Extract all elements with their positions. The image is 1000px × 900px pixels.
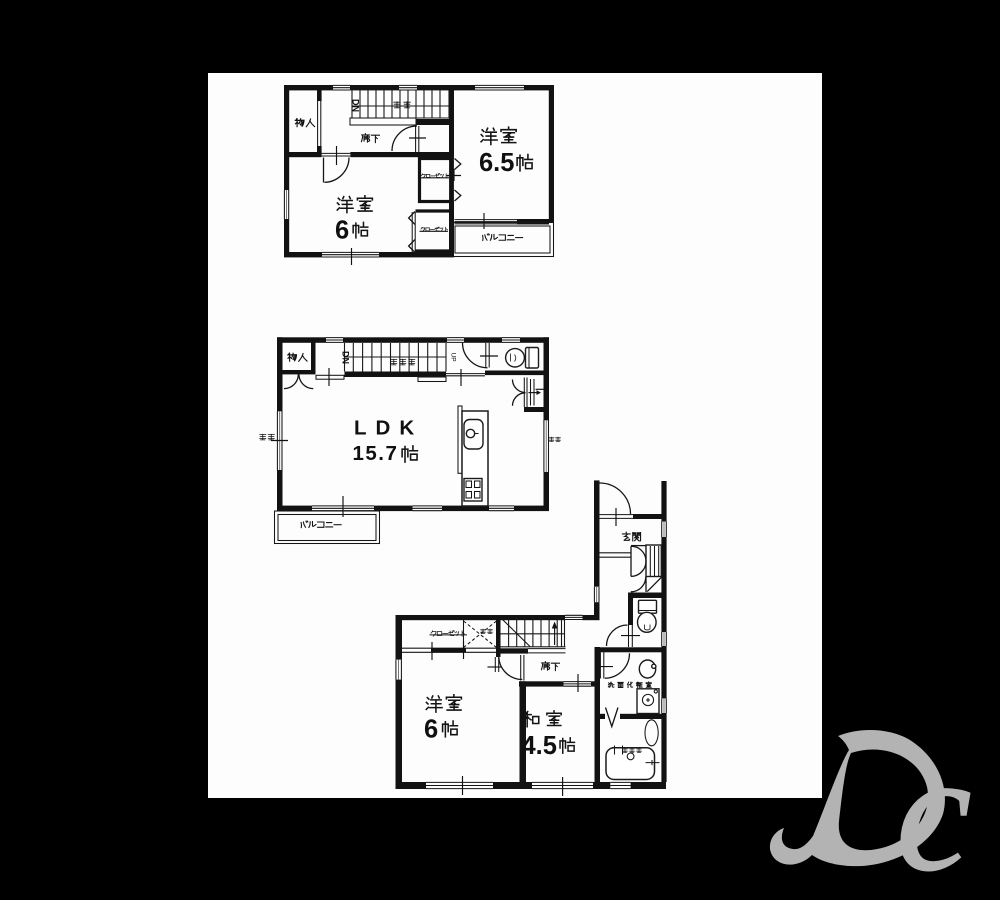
svg-text:UP: UP xyxy=(450,353,457,362)
svg-text:6.5: 6.5 xyxy=(479,149,514,177)
svg-text:DN: DN xyxy=(341,351,351,364)
svg-text:6: 6 xyxy=(424,715,438,743)
svg-text:4.5: 4.5 xyxy=(522,732,557,760)
svg-text:6: 6 xyxy=(335,217,349,245)
svg-text:c: c xyxy=(896,718,971,900)
svg-text:15.7: 15.7 xyxy=(353,442,399,465)
svg-text:LDK: LDK xyxy=(354,417,423,440)
svg-text:DN: DN xyxy=(351,99,361,112)
